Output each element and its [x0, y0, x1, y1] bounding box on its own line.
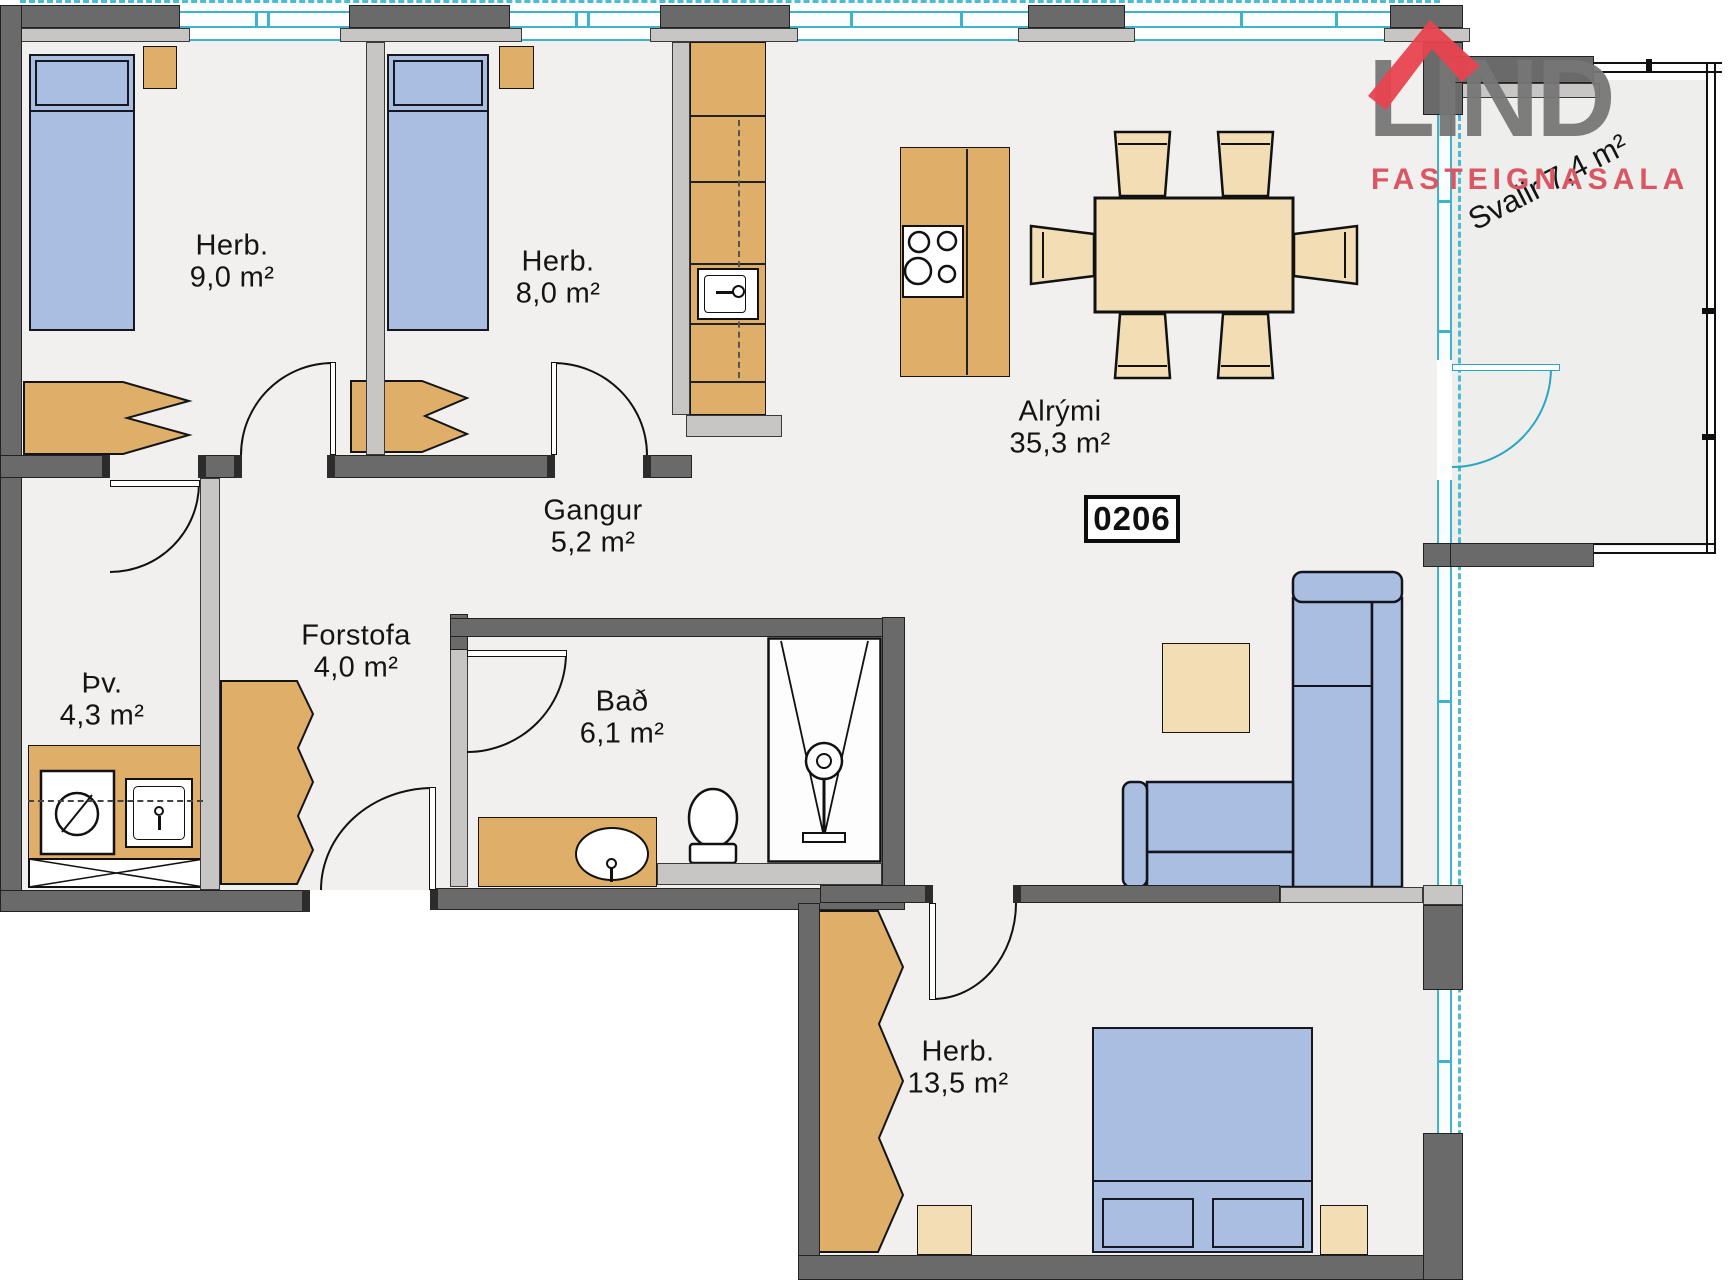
room-label-thvottahus: Þv. 4,3 m²	[60, 668, 145, 733]
window	[1125, 11, 1390, 28]
bath-faucet-stem	[610, 868, 613, 882]
balcony-railing	[1593, 543, 1714, 545]
door-post	[234, 455, 242, 478]
room-name: Gangur	[543, 495, 642, 527]
room-area: 4,0 m²	[301, 652, 411, 684]
door-post	[430, 888, 438, 910]
sill-under-sofa	[1280, 887, 1423, 903]
partition-bath-left	[450, 648, 468, 887]
unit-number: 0206	[1093, 500, 1170, 538]
room-name: Bað	[580, 686, 665, 718]
door-leaf-laundry	[110, 480, 200, 487]
room-name: Herb.	[516, 246, 601, 278]
room-area: 5,2 m²	[543, 527, 642, 559]
wardrobe	[23, 381, 190, 455]
wall-bottom-exterior	[798, 1255, 1463, 1280]
exterior-dashed-line	[1458, 115, 1461, 1280]
window-mullion	[255, 13, 258, 26]
door-post	[198, 455, 206, 478]
bed-pillow	[393, 60, 483, 106]
partition-laundry	[200, 478, 220, 890]
wardrobe	[220, 680, 314, 885]
door-leaf-bedroom3	[929, 903, 936, 1000]
partition-bedrooms	[366, 42, 385, 455]
room-area: 6,1 m²	[580, 718, 665, 750]
floor-plan: Herb. 9,0 m² Herb. 8,0 m² Alrými 35,3 m²…	[0, 0, 1731, 1280]
window	[180, 11, 349, 28]
coffee-table	[1162, 643, 1250, 733]
window	[1437, 567, 1452, 885]
wall-segment	[1423, 1133, 1463, 1280]
window-mullion	[1439, 330, 1450, 333]
window-mullion	[1335, 13, 1338, 26]
room-name: Alrými	[1009, 396, 1110, 428]
window-sill	[0, 28, 190, 42]
door-leaf-bath	[467, 650, 567, 657]
wall-segment	[1423, 905, 1463, 990]
sill-kitchen-end	[686, 415, 782, 437]
wardrobe	[812, 910, 904, 1253]
lind-logo-subtitle: FASTEIGNASALA	[1371, 163, 1689, 197]
dining-set	[1020, 120, 1360, 385]
railing-tick	[1646, 59, 1652, 71]
vent-unit	[28, 858, 205, 888]
room-label-gangur: Gangur 5,2 m²	[543, 495, 642, 560]
bed-duvet-line	[31, 110, 133, 112]
room-name: Forstofa	[301, 620, 411, 652]
wall-bottom-left	[0, 890, 310, 912]
wall-bedroom3-left	[798, 903, 820, 1258]
counter-dashed-line	[28, 800, 203, 802]
door-post	[643, 455, 651, 478]
bed-pillow	[35, 60, 129, 106]
room-name: Herb.	[907, 1036, 1008, 1068]
room-area: 4,3 m²	[60, 700, 145, 732]
balcony-railing	[1714, 62, 1716, 554]
room-name: Herb.	[190, 230, 275, 262]
door-post	[925, 885, 933, 903]
window	[790, 11, 1028, 28]
wall-balcony-bottom	[1450, 543, 1594, 567]
wall-segment	[0, 5, 180, 28]
counter-divider	[690, 263, 766, 265]
laundry-faucet-stem	[158, 816, 161, 830]
kitchen-counter	[690, 42, 766, 415]
room-label-herb2: Herb. 8,0 m²	[516, 246, 601, 311]
counter-divider	[690, 381, 766, 383]
sill-right	[1423, 885, 1463, 905]
window-mullion	[1240, 13, 1243, 26]
upper-cabinet-dashed	[738, 120, 740, 378]
nightstand	[499, 46, 534, 89]
window-mullion	[1439, 1060, 1450, 1063]
wall-segment	[349, 5, 510, 28]
wall-segment	[1017, 885, 1280, 903]
room-area: 9,0 m²	[190, 262, 275, 294]
wall-segment	[660, 5, 790, 28]
nightstand	[1320, 1205, 1368, 1255]
balcony-railing	[1594, 71, 1722, 73]
bed-pillow	[1212, 1198, 1304, 1248]
partition-kitchen	[672, 42, 690, 415]
kitchen-faucet-knob	[732, 285, 745, 298]
door-post	[547, 455, 555, 478]
counter-divider	[690, 115, 766, 117]
railing-tick	[1702, 308, 1714, 314]
room-area: 13,5 m²	[907, 1068, 1008, 1100]
room-label-bad: Bað 6,1 m²	[580, 686, 665, 751]
nightstand	[143, 46, 177, 89]
stove-burners	[902, 225, 964, 298]
counter-divider	[690, 323, 766, 325]
toilet	[686, 788, 740, 866]
door-post	[302, 890, 310, 912]
window-sill	[1018, 28, 1135, 42]
window-mullion	[575, 13, 578, 26]
door-post	[102, 455, 110, 478]
laundry-faucet	[154, 806, 164, 816]
room-area: 35,3 m²	[1009, 428, 1110, 460]
wall-bath-right	[882, 617, 905, 903]
wall-bath-top	[450, 618, 900, 637]
room-label-forstofa: Forstofa 4,0 m²	[301, 620, 411, 685]
roof-overhang-dashed-line	[20, 0, 1440, 3]
railing-tick	[1702, 434, 1714, 440]
window-mullion	[1439, 200, 1450, 203]
window	[1437, 480, 1452, 543]
window-mullion	[267, 13, 270, 26]
door-leaf-bedroom1	[330, 362, 336, 455]
bed-pillow	[1102, 1198, 1194, 1248]
lind-roof-icon	[1366, 12, 1486, 112]
window-sill	[650, 28, 798, 42]
balcony-railing	[1593, 552, 1714, 554]
door-leaf-bedroom2	[551, 362, 557, 455]
unit-number-box: 0206	[1084, 495, 1180, 543]
wall-segment	[333, 455, 553, 478]
island-divider	[966, 149, 968, 375]
window-mullion	[587, 13, 590, 26]
window-mullion	[850, 13, 853, 26]
wall-segment	[820, 885, 933, 903]
counter-divider	[690, 181, 766, 183]
door-post	[1013, 885, 1021, 903]
room-label-herb1: Herb. 9,0 m²	[190, 230, 275, 295]
window-mullion	[960, 13, 963, 26]
wall-segment	[0, 455, 110, 478]
window-sill	[340, 28, 522, 42]
shower	[767, 637, 882, 863]
sill-shower-back	[657, 863, 882, 885]
door-leaf-entrance	[429, 787, 436, 890]
door-post	[327, 455, 335, 478]
window	[510, 11, 660, 28]
washing-machine	[40, 770, 115, 855]
room-label-alrymi: Alrými 35,3 m²	[1009, 396, 1110, 461]
wall-segment	[1028, 5, 1125, 28]
window-mullion	[1439, 700, 1450, 703]
door-leaf-balcony	[1452, 364, 1560, 371]
room-label-herb3: Herb. 13,5 m²	[907, 1036, 1008, 1101]
nightstand	[917, 1205, 972, 1255]
bed-duvet-line	[1094, 1180, 1311, 1182]
room-area: 8,0 m²	[516, 278, 601, 310]
balcony-railing	[1594, 62, 1722, 64]
wall-segment	[648, 455, 692, 478]
room-name: Þv.	[60, 668, 145, 700]
bed-duvet-line	[389, 110, 487, 112]
